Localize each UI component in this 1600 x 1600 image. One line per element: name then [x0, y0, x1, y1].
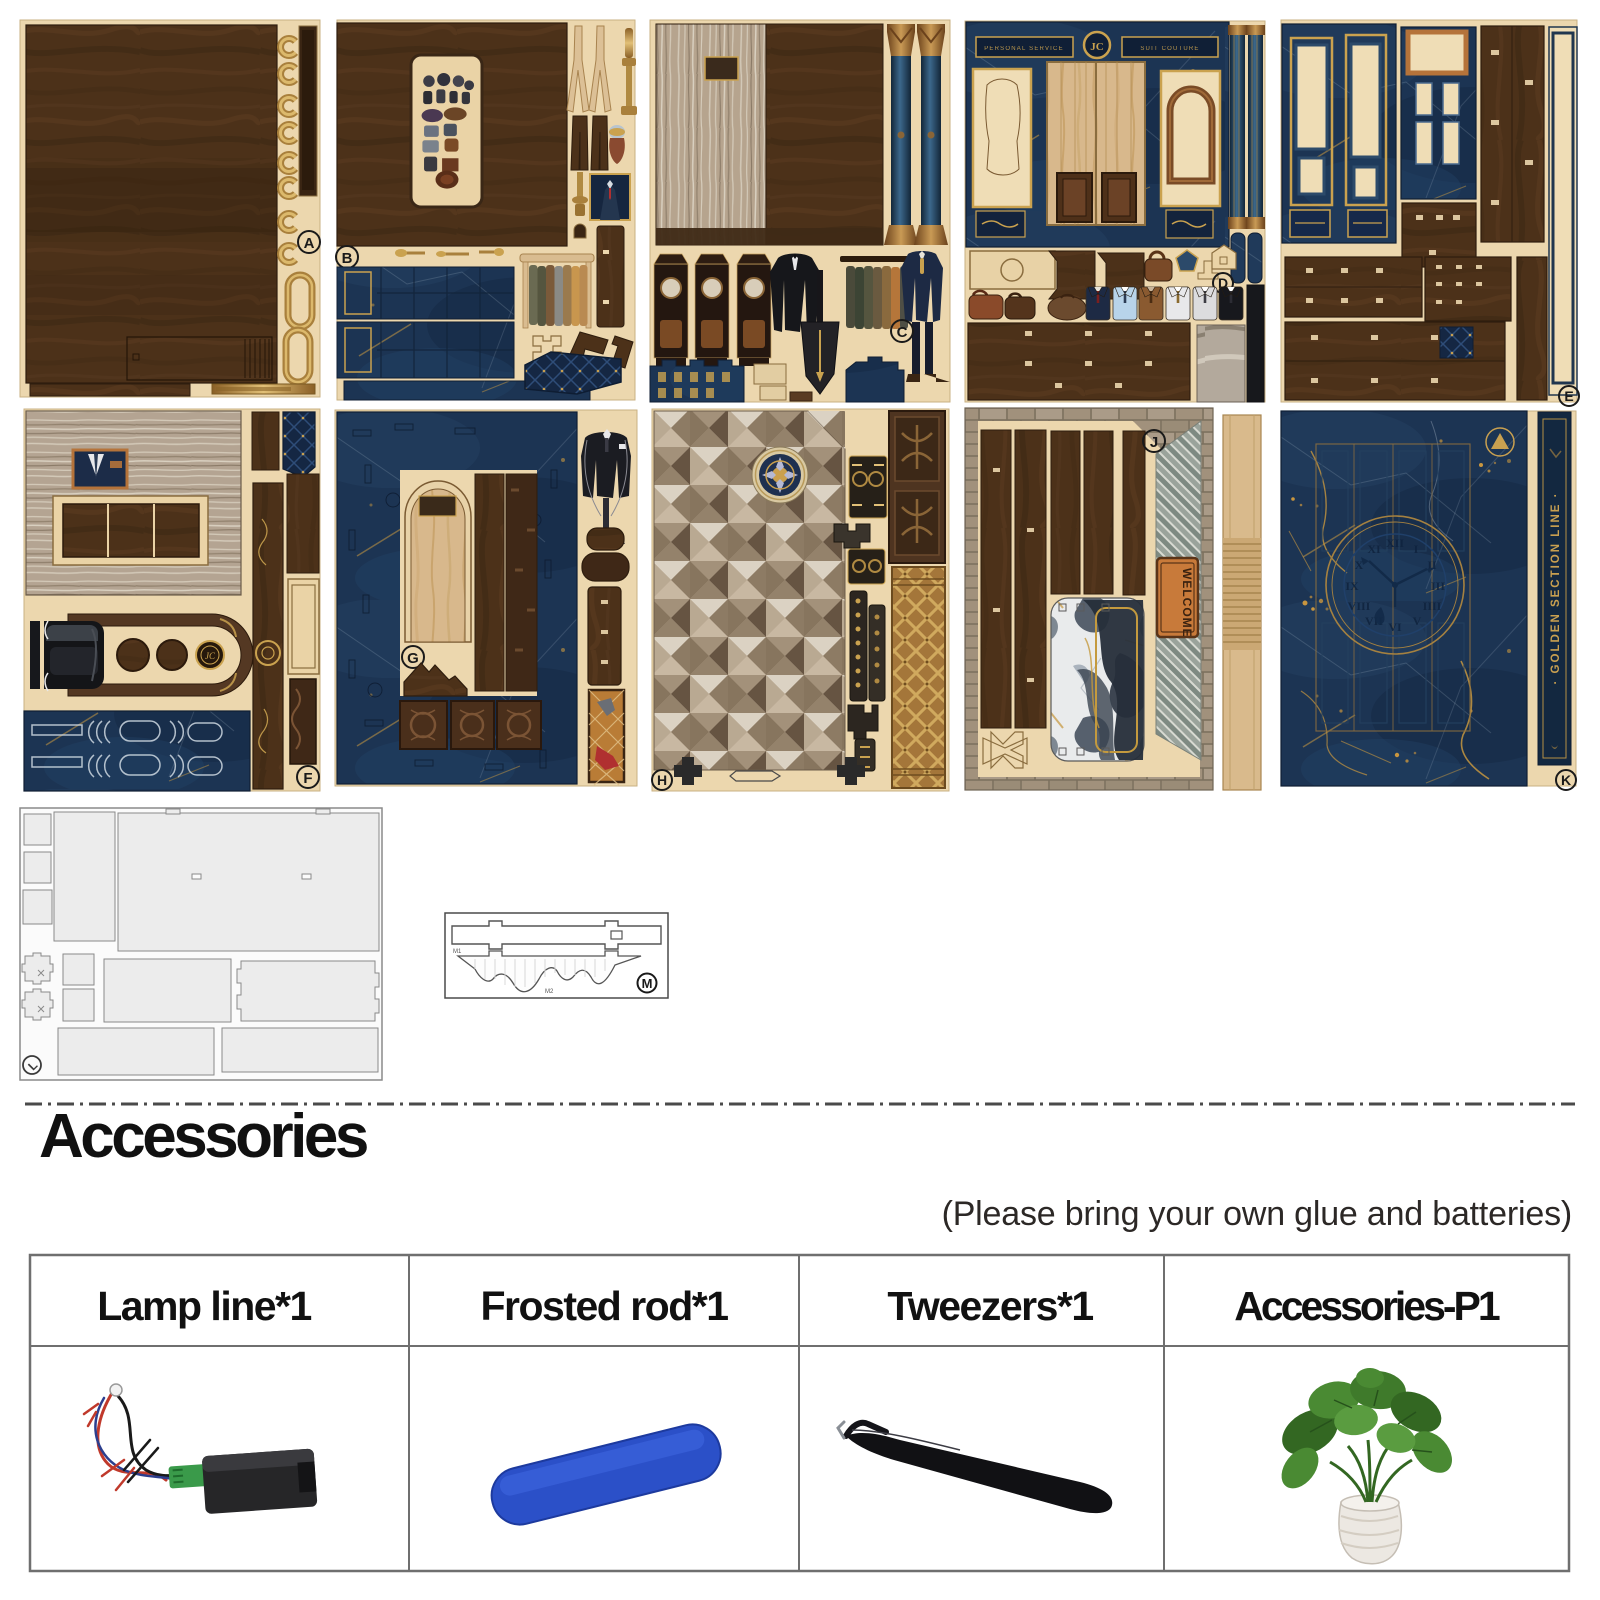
svg-text:E: E — [1564, 388, 1573, 404]
svg-text:B: B — [342, 250, 353, 267]
svg-text:· GOLDEN SECTION LINE ·: · GOLDEN SECTION LINE · — [1550, 492, 1562, 685]
svg-text:M: M — [642, 976, 653, 991]
svg-text:VI: VI — [1388, 620, 1402, 634]
svg-text:Frosted rod*1: Frosted rod*1 — [480, 1283, 728, 1329]
svg-text:JC: JC — [1090, 41, 1104, 53]
svg-text:JC: JC — [205, 651, 216, 661]
svg-text:XI: XI — [1367, 542, 1381, 556]
svg-text:SUIT COUTURE: SUIT COUTURE — [1140, 46, 1199, 52]
svg-text:III: III — [1431, 579, 1445, 593]
svg-text:Accessories-P1: Accessories-P1 — [1234, 1283, 1500, 1329]
svg-text:Lamp line*1: Lamp line*1 — [97, 1283, 311, 1329]
svg-text:F: F — [303, 770, 312, 787]
svg-text:Tweezers*1: Tweezers*1 — [887, 1283, 1093, 1329]
svg-text:K: K — [1561, 772, 1571, 788]
svg-text:G: G — [407, 650, 419, 667]
svg-text:H: H — [657, 772, 667, 788]
svg-text:V: V — [1413, 614, 1422, 628]
svg-text:M2: M2 — [545, 989, 554, 995]
svg-text:VIII: VIII — [1348, 599, 1371, 613]
svg-text:Accessories: Accessories — [39, 1102, 367, 1171]
svg-text:PERSONAL SERVICE: PERSONAL SERVICE — [984, 46, 1064, 52]
svg-text:IX: IX — [1345, 579, 1359, 593]
svg-text:XII: XII — [1386, 536, 1404, 550]
svg-text:WELCOME: WELCOME — [1180, 568, 1194, 638]
svg-text:IIII: IIII — [1423, 599, 1442, 613]
svg-text:C: C — [897, 324, 908, 341]
svg-text:A: A — [304, 235, 315, 252]
svg-text:M1: M1 — [453, 949, 462, 955]
svg-text:I: I — [1414, 542, 1419, 556]
svg-text:(Please bring your own glue an: (Please bring your own glue and batterie… — [942, 1195, 1572, 1233]
svg-text:J: J — [1150, 434, 1158, 451]
